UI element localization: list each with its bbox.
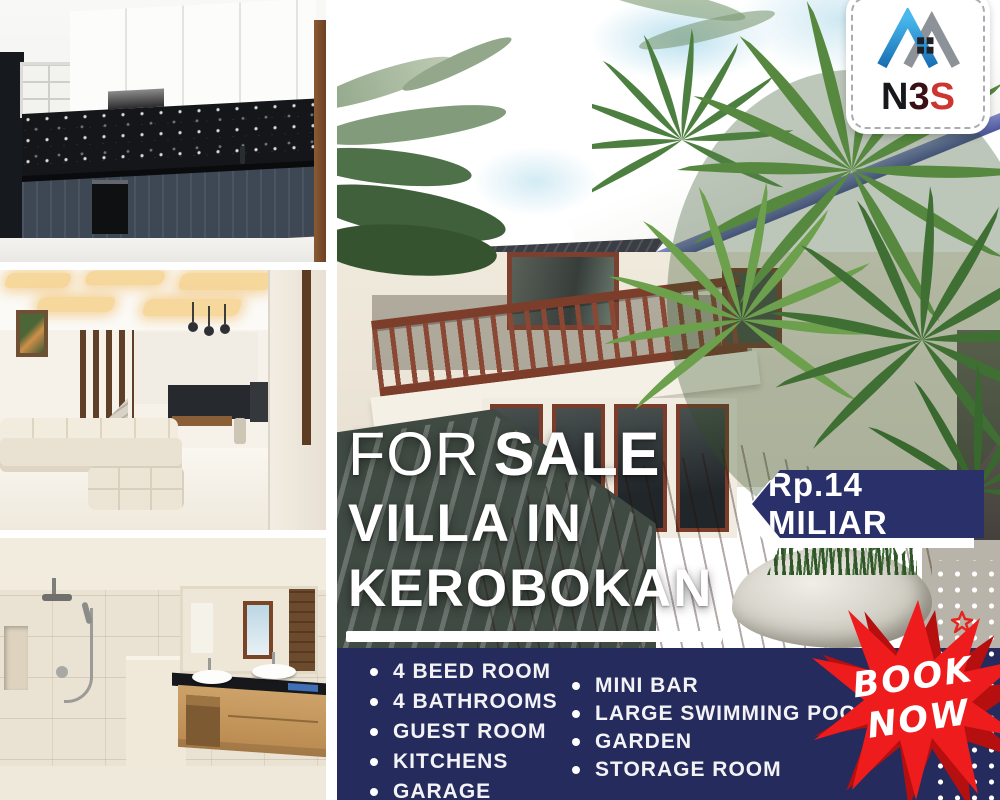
kitchen-floor <box>0 238 326 262</box>
feature-label: KITCHENS <box>393 750 508 774</box>
feature-item: 4 BATHROOMS <box>370 687 558 717</box>
features-list-left: 4 BEED ROOM 4 BATHROOMS GUEST ROOM KITCH… <box>370 657 558 800</box>
kitchen-door-frame <box>314 20 326 262</box>
cta-text: BOOK NOW <box>799 585 1000 800</box>
back-kitchen-cabinets <box>168 385 252 419</box>
headline: FORSALE VILLA IN KEROBOKAN <box>348 424 713 615</box>
ceiling-light <box>84 271 167 285</box>
mirror-window-reflection <box>243 601 273 659</box>
pendant-lamp <box>188 322 198 332</box>
wood-trim <box>302 270 311 445</box>
feature-item: KITCHENS <box>370 747 558 777</box>
feature-label: GUEST ROOM <box>393 720 547 744</box>
kitchen-photo <box>0 0 326 262</box>
brand-letter: 3 <box>908 76 929 118</box>
headline-line1: FORSALE <box>348 424 713 485</box>
pendant-lamp <box>220 324 230 334</box>
basin-faucet <box>272 652 275 664</box>
bullet-dot-icon <box>370 728 378 736</box>
bullet-dot-icon <box>572 710 580 718</box>
wall-painting <box>16 310 48 357</box>
headline-line3: KEROBOKAN <box>348 562 713 615</box>
feature-label: 4 BEED ROOM <box>393 660 551 684</box>
bullet-dot-icon <box>572 738 580 746</box>
dining-chair <box>234 418 246 444</box>
price-text: Rp.14 MILIAR <box>752 470 984 538</box>
vanity-open-shelf <box>186 695 220 747</box>
living-room-photo <box>0 270 326 530</box>
feature-label: 4 BATHROOMS <box>393 690 558 714</box>
basin-faucet <box>208 658 211 670</box>
feature-label: STORAGE ROOM <box>595 758 782 782</box>
kitchen-oven <box>92 180 128 234</box>
feature-item: 4 BEED ROOM <box>370 657 558 687</box>
kitchen-faucet <box>240 146 245 164</box>
feature-item: GARAGE <box>370 777 558 800</box>
pendant-lamp <box>204 326 214 336</box>
bullet-dot-icon <box>370 758 378 766</box>
headline-for: FOR <box>348 420 480 488</box>
book-now-cta[interactable]: BOOK NOW <box>812 598 1000 800</box>
wash-basin <box>252 664 296 679</box>
vanity-mirror <box>180 586 318 674</box>
feature-label: GARDEN <box>595 730 692 754</box>
bullet-dot-icon <box>370 788 378 796</box>
shower-head <box>42 594 72 601</box>
house-roofs-icon <box>875 8 961 70</box>
ceiling-light <box>4 273 73 288</box>
wash-basin <box>192 670 232 684</box>
brand-letter: N <box>881 76 908 118</box>
headline-line2: VILLA IN <box>348 497 713 550</box>
bathroom-photo <box>0 538 326 800</box>
pendant-stem <box>208 306 210 326</box>
flyer: FORSALE VILLA IN KEROBOKAN Rp.14 MILIAR … <box>0 0 1000 800</box>
mirror-reflection <box>191 603 213 653</box>
pendant-stem <box>224 304 226 324</box>
right-pillar <box>268 270 326 530</box>
dining-table <box>172 416 232 426</box>
bathroom-upper-wall <box>0 538 326 590</box>
sofa-chaise <box>88 466 184 510</box>
ceiling-light <box>177 273 275 290</box>
bullet-dot-icon <box>370 698 378 706</box>
bullet-dot-icon <box>572 766 580 774</box>
headline-sale: SALE <box>494 420 661 488</box>
shower-valve <box>56 666 68 678</box>
feature-label: GARAGE <box>393 780 491 800</box>
feature-item: GUEST ROOM <box>370 717 558 747</box>
price-tag: Rp.14 MILIAR <box>742 468 990 556</box>
mirror-wood-reflection <box>289 589 315 671</box>
feature-label: MINI BAR <box>595 674 699 698</box>
brand-badge: N3S <box>846 0 990 134</box>
bullet-dot-icon <box>370 668 378 676</box>
shower-niche <box>4 626 28 690</box>
headline-underline <box>346 631 722 642</box>
brand-name: N3S <box>846 76 990 119</box>
bathroom-floor <box>0 766 326 800</box>
bullet-dot-icon <box>572 682 580 690</box>
brand-letter: S <box>930 76 955 118</box>
pendant-stem <box>192 302 194 322</box>
